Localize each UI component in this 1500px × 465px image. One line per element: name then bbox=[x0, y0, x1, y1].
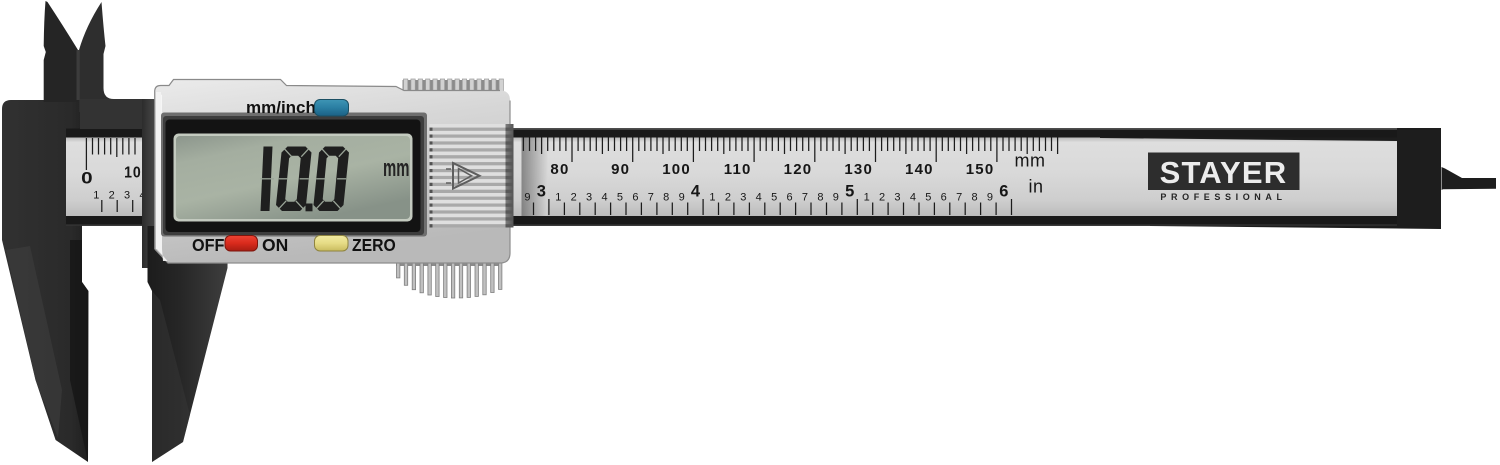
svg-text:10: 10 bbox=[124, 165, 142, 182]
svg-text:6: 6 bbox=[786, 192, 793, 204]
svg-text:2: 2 bbox=[879, 192, 886, 204]
svg-text:ON: ON bbox=[262, 235, 288, 255]
svg-text:mm: mm bbox=[1015, 151, 1046, 171]
svg-text:PROFESSIONAL: PROFESSIONAL bbox=[1160, 192, 1286, 202]
svg-text:9: 9 bbox=[987, 192, 994, 204]
svg-text:4: 4 bbox=[601, 192, 608, 204]
svg-text:ZERO: ZERO bbox=[352, 235, 396, 255]
svg-text:5: 5 bbox=[771, 192, 778, 204]
svg-text:3: 3 bbox=[124, 190, 131, 202]
svg-text:3: 3 bbox=[894, 192, 901, 204]
svg-text:150: 150 bbox=[966, 161, 995, 178]
svg-text:2: 2 bbox=[725, 192, 732, 204]
svg-text:6: 6 bbox=[632, 192, 639, 204]
svg-text:110: 110 bbox=[724, 161, 752, 178]
svg-text:7: 7 bbox=[648, 192, 655, 204]
svg-text:8: 8 bbox=[817, 192, 824, 204]
svg-text:5: 5 bbox=[617, 192, 624, 204]
svg-text:OFF: OFF bbox=[192, 235, 225, 255]
svg-text:2: 2 bbox=[109, 190, 116, 202]
svg-text:1: 1 bbox=[93, 190, 100, 202]
svg-text:9: 9 bbox=[833, 192, 840, 204]
svg-text:1: 1 bbox=[555, 192, 562, 204]
svg-text:9: 9 bbox=[524, 192, 531, 204]
svg-text:1: 1 bbox=[709, 192, 716, 204]
svg-text:80: 80 bbox=[550, 161, 569, 178]
svg-text:130: 130 bbox=[844, 161, 873, 178]
svg-text:mm/inch: mm/inch bbox=[246, 98, 316, 117]
svg-text:4: 4 bbox=[910, 192, 917, 204]
svg-text:7: 7 bbox=[956, 192, 963, 204]
svg-text:100: 100 bbox=[662, 161, 691, 178]
svg-text:in: in bbox=[1028, 177, 1043, 197]
svg-text:90: 90 bbox=[611, 161, 630, 178]
svg-text:9: 9 bbox=[679, 192, 686, 204]
svg-text:6: 6 bbox=[941, 192, 948, 204]
svg-text:1: 1 bbox=[864, 192, 871, 204]
svg-text:120: 120 bbox=[784, 161, 813, 178]
svg-text:5: 5 bbox=[845, 183, 855, 201]
svg-text:3: 3 bbox=[586, 192, 593, 204]
svg-text:STAYER: STAYER bbox=[1160, 155, 1288, 190]
svg-text:5: 5 bbox=[925, 192, 932, 204]
svg-text:6: 6 bbox=[999, 183, 1009, 201]
svg-text:8: 8 bbox=[972, 192, 979, 204]
svg-text:2: 2 bbox=[571, 192, 578, 204]
svg-text:0: 0 bbox=[81, 168, 93, 187]
svg-text:3: 3 bbox=[740, 192, 747, 204]
svg-text:3: 3 bbox=[537, 183, 547, 201]
svg-text:7: 7 bbox=[802, 192, 809, 204]
svg-text:mm: mm bbox=[383, 156, 409, 182]
svg-text:140: 140 bbox=[905, 161, 934, 178]
svg-text:8: 8 bbox=[663, 192, 670, 204]
svg-text:4: 4 bbox=[691, 183, 701, 201]
svg-text:4: 4 bbox=[756, 192, 763, 204]
